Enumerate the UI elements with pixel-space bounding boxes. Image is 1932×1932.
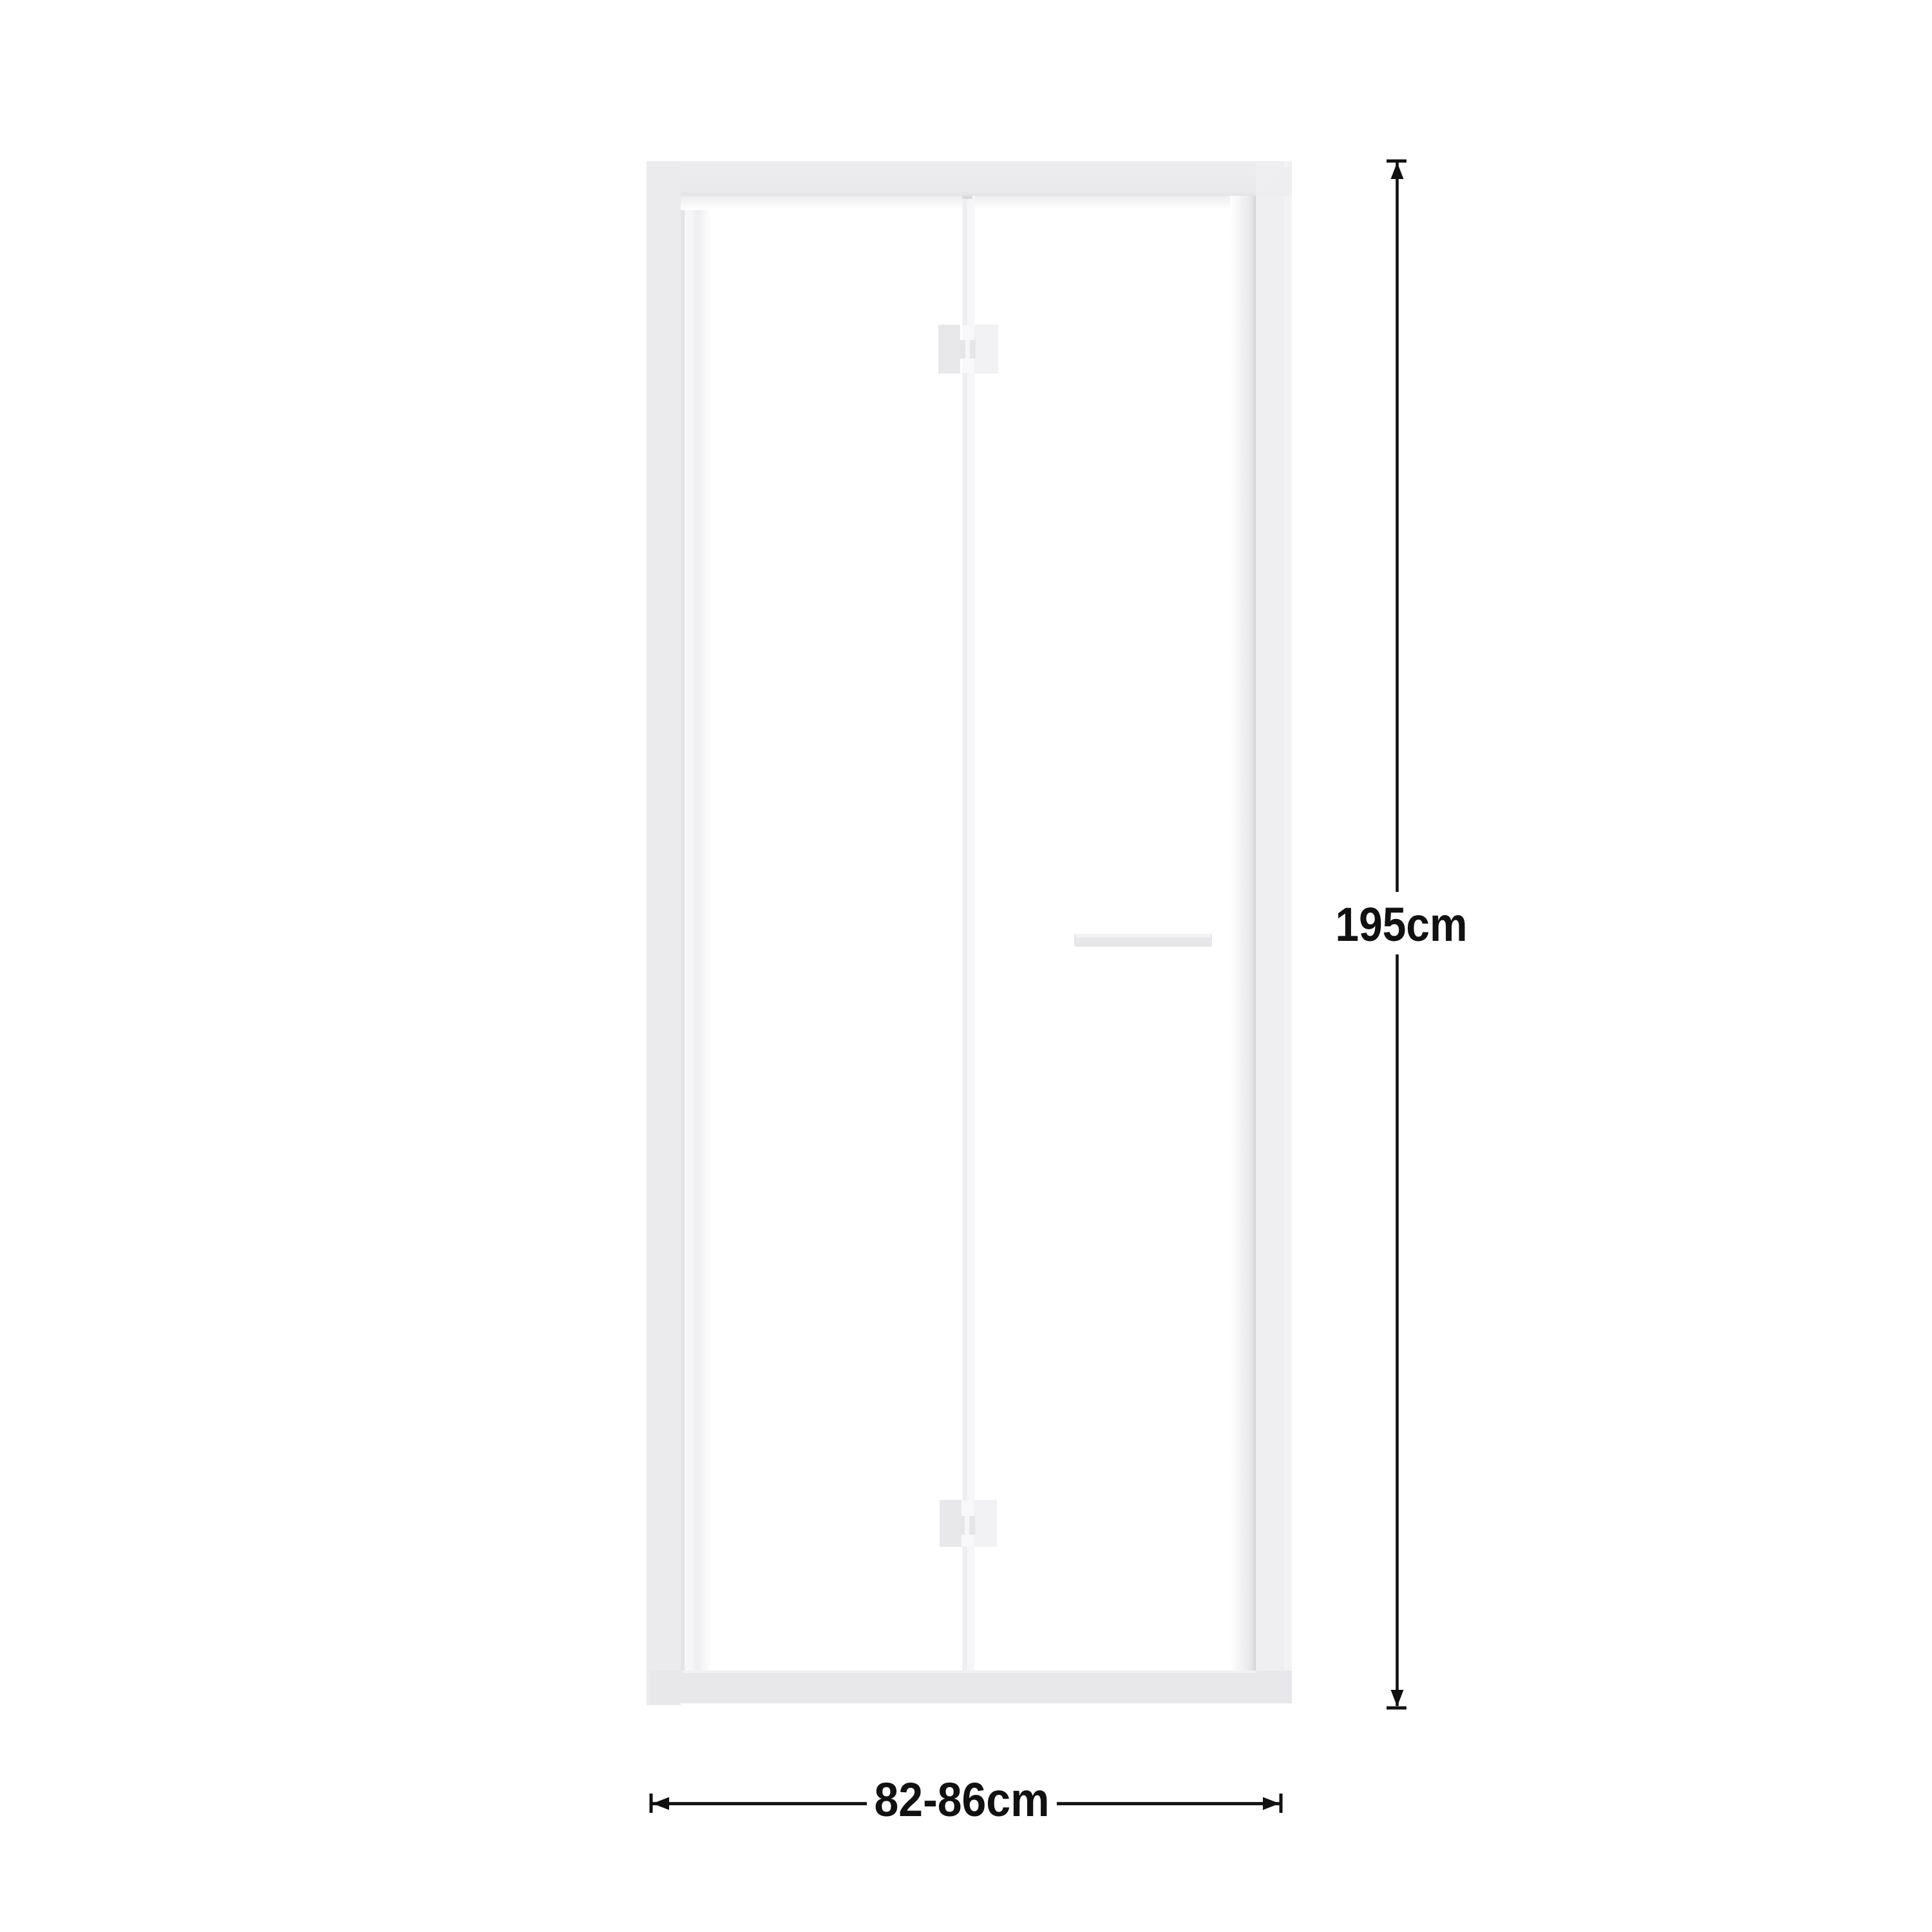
svg-text:82-86cm: 82-86cm	[875, 1773, 1050, 1826]
svg-text:195cm: 195cm	[1336, 898, 1468, 951]
